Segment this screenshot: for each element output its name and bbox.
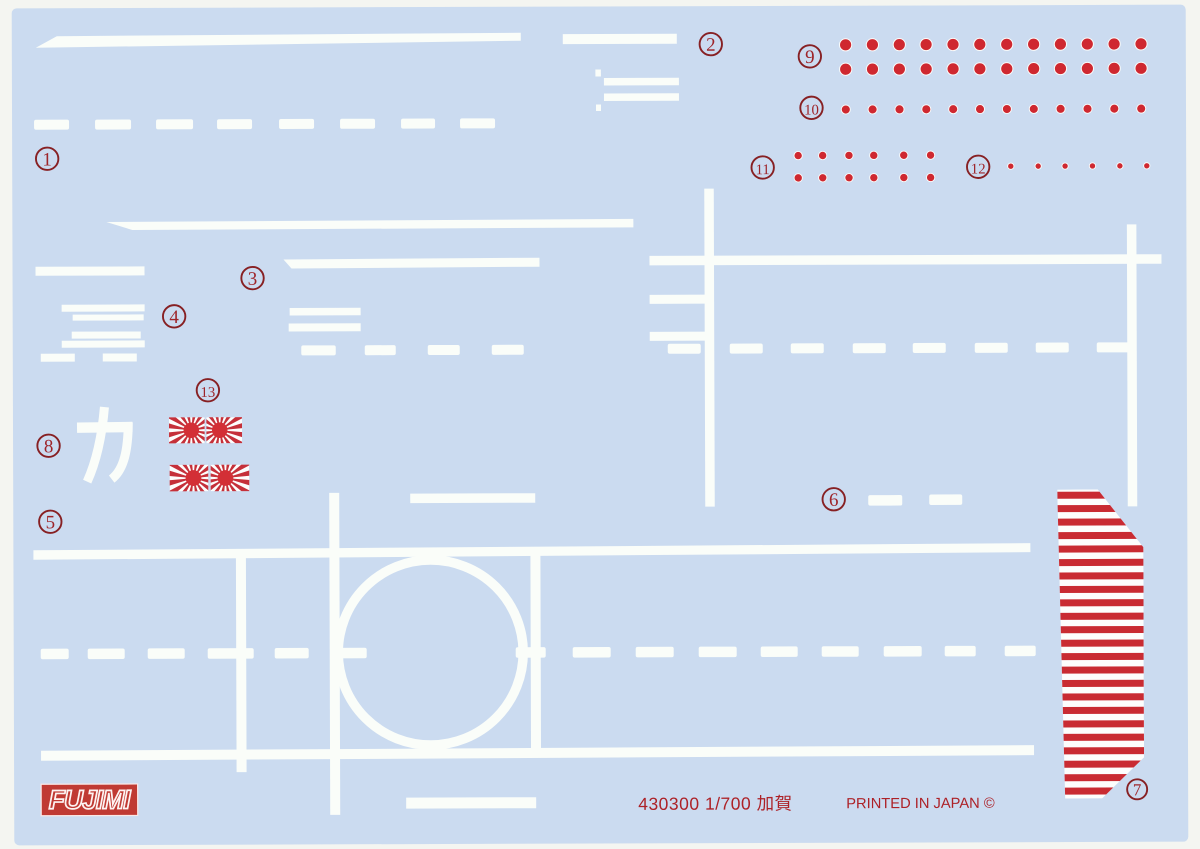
svg-text:8: 8 xyxy=(44,436,54,457)
svg-text:1: 1 xyxy=(42,149,52,170)
svg-text:3: 3 xyxy=(248,269,258,290)
svg-text:430300 1/700 加賀: 430300 1/700 加賀 xyxy=(638,793,792,813)
svg-text:FUJIMI: FUJIMI xyxy=(49,784,132,814)
svg-text:10: 10 xyxy=(804,103,819,119)
svg-text:PRINTED IN JAPAN ©: PRINTED IN JAPAN © xyxy=(846,796,995,812)
svg-text:11: 11 xyxy=(756,162,770,178)
svg-text:4: 4 xyxy=(169,307,179,328)
svg-text:9: 9 xyxy=(805,47,815,68)
svg-text:5: 5 xyxy=(46,512,56,533)
svg-text:12: 12 xyxy=(971,161,986,177)
svg-text:13: 13 xyxy=(200,385,215,401)
svg-text:7: 7 xyxy=(1133,780,1142,799)
svg-text:6: 6 xyxy=(829,490,839,511)
svg-text:2: 2 xyxy=(706,35,716,56)
